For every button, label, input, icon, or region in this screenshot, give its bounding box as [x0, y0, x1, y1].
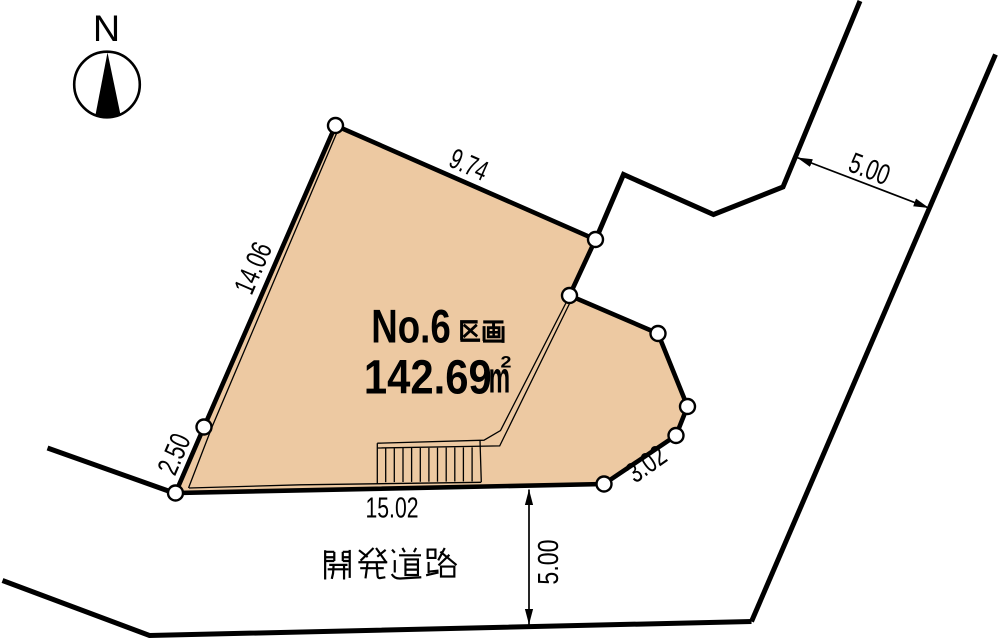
svg-text:N: N [93, 7, 120, 49]
svg-text:142.69: 142.69 [364, 350, 492, 405]
svg-text:15.02: 15.02 [366, 492, 419, 524]
svg-text:5.00: 5.00 [531, 539, 564, 584]
svg-text:2: 2 [501, 352, 512, 371]
svg-text:No.6: No.6 [371, 300, 450, 352]
